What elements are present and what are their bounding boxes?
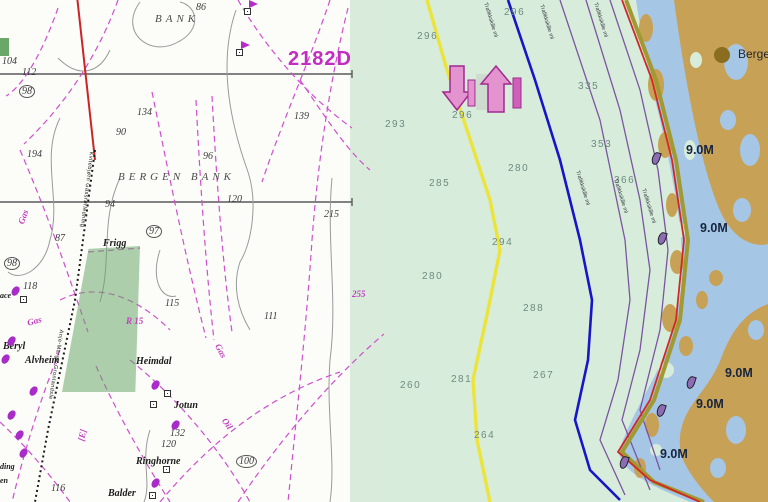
light-buoy-icon xyxy=(618,455,630,470)
paper-chart-symbols xyxy=(0,0,384,502)
paper-chart-pane: 2182D 86BANK104112981349013919496BERGEN … xyxy=(0,0,384,502)
light-buoy-icon xyxy=(650,151,662,166)
platform-flare-icon xyxy=(6,409,17,421)
light-buoy-icon xyxy=(685,375,697,390)
light-buoy-icon xyxy=(655,403,667,418)
platform-flare-icon xyxy=(28,385,39,397)
ecdis-symbols xyxy=(384,0,768,502)
platform-flare-icon xyxy=(170,419,181,431)
platform-box-icon xyxy=(164,390,171,397)
platform-flare-icon xyxy=(18,447,29,459)
platform-flag-icon xyxy=(241,41,250,49)
platform-box-icon xyxy=(244,8,251,15)
platform-flare-icon xyxy=(14,429,25,441)
platform-box-icon xyxy=(150,401,157,408)
platform-box-icon xyxy=(20,296,27,303)
platform-flare-icon xyxy=(150,379,161,391)
ecdis-chart-pane: 2962962932962852803353533662942802882602… xyxy=(384,0,768,502)
platform-box-icon xyxy=(236,49,243,56)
platform-box-icon xyxy=(149,492,156,499)
platform-flare-icon xyxy=(0,353,11,365)
platform-flag-icon xyxy=(249,0,258,8)
platform-flare-icon xyxy=(150,477,161,489)
platform-box-icon xyxy=(163,466,170,473)
light-buoy-icon xyxy=(656,231,668,246)
chart-comparison-screenshot: 2182D 86BANK104112981349013919496BERGEN … xyxy=(0,0,768,502)
platform-flare-icon xyxy=(6,335,17,347)
